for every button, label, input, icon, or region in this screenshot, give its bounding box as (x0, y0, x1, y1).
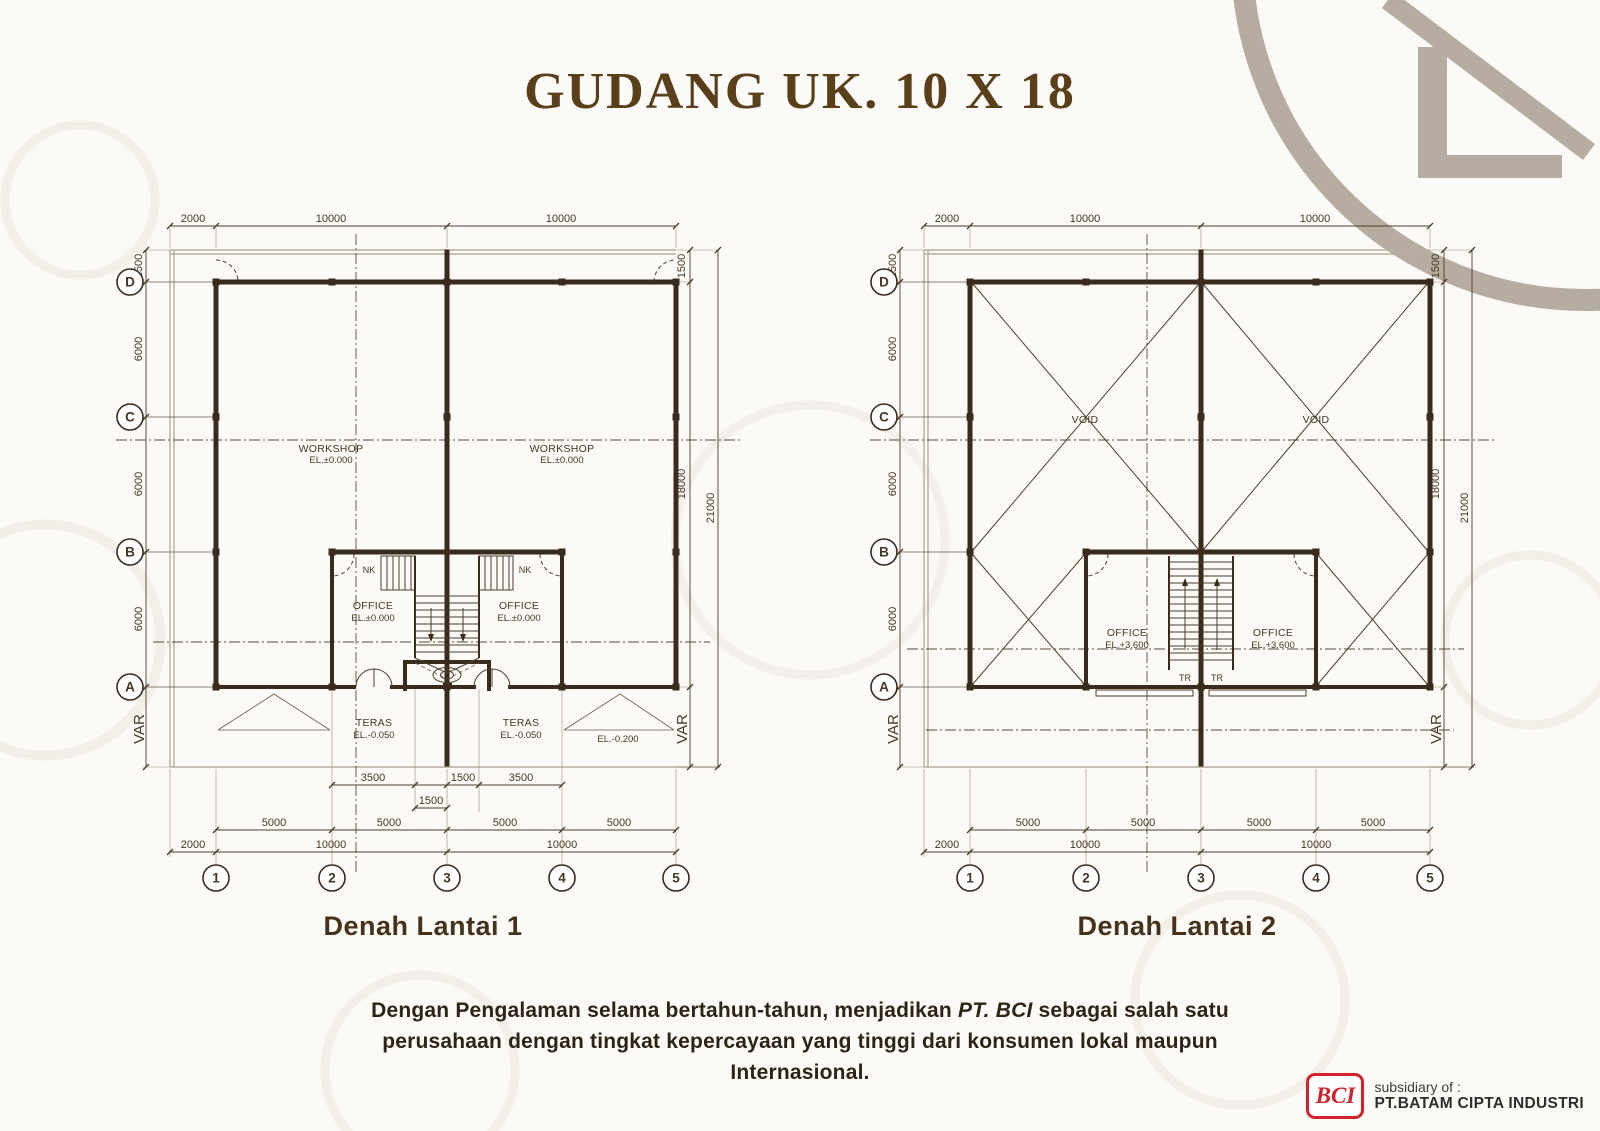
dim-label: 6000 (887, 337, 899, 361)
floor-plans-row: 2000 10000 10000 1500 6000 6000 6000 VAR… (0, 212, 1600, 942)
dim-label: 2000 (181, 213, 205, 225)
grid-bubble-label: B (879, 545, 889, 560)
room-label: EL.-0.050 (500, 730, 541, 741)
plan2-extension-lines (897, 228, 1474, 864)
plan1-grid-bubbles: D C B A 1 2 3 4 5 (117, 269, 689, 891)
grid-bubble-label: 1 (212, 871, 220, 886)
dim-label: 6000 (133, 607, 145, 631)
stair-label: NK (363, 565, 376, 575)
dim-label: 6000 (133, 337, 145, 361)
dim-label: 1500 (1430, 254, 1442, 278)
grid-bubble-label: 5 (1426, 871, 1434, 886)
room-label: EL.±0.000 (309, 455, 352, 466)
dim-label: VAR (885, 714, 902, 744)
dim-label: 5000 (262, 817, 286, 829)
room-label: OFFICE (1107, 627, 1147, 639)
dim-label: 2000 (935, 839, 959, 851)
dim-label: 5000 (1247, 817, 1271, 829)
dim-label: 6000 (133, 472, 145, 496)
room-label: EL.+3.600 (1105, 640, 1149, 651)
dim-label: 5000 (1016, 817, 1040, 829)
dim-label: 5000 (1131, 817, 1155, 829)
dim-label: VAR (674, 714, 691, 744)
stair-label: NK (519, 565, 532, 575)
footer-brand-mention: PT. BCI (958, 999, 1033, 1022)
plan2-grid-bubbles: D C B A 1 2 3 4 5 (871, 269, 1443, 891)
grid-bubble-label: 2 (328, 871, 336, 886)
plan1-dimension-labels: 2000 10000 10000 1500 6000 6000 6000 VAR… (131, 213, 717, 851)
dim-label: 10000 (1070, 213, 1101, 225)
room-label: WORKSHOP (299, 443, 364, 455)
bci-logo: BCI (1306, 1073, 1364, 1119)
plan1-grid-leaders (143, 282, 214, 687)
plan2-grid-leaders (897, 282, 968, 687)
grid-bubble-label: 3 (1197, 871, 1205, 886)
room-label: EL.+3.600 (1251, 640, 1295, 651)
stair-label: TR (1179, 673, 1191, 683)
grid-bubble-label: D (879, 275, 889, 290)
grid-bubble-label: C (125, 410, 135, 425)
dim-label: 10000 (547, 839, 578, 851)
dim-label: 6000 (887, 472, 899, 496)
company-name: PT.BATAM CIPTA INDUSTRI (1374, 1095, 1584, 1113)
room-label: EL.±0.000 (540, 455, 583, 466)
page-title: GUDANG UK. 10 X 18 (0, 62, 1600, 121)
dim-label: 10000 (316, 213, 347, 225)
dim-label: VAR (1428, 714, 1445, 744)
grid-bubble-label: 2 (1082, 871, 1090, 886)
plan2-drawing: 2000 10000 10000 1500 6000 6000 6000 VAR… (852, 212, 1502, 902)
plan1-dimension-lines (143, 223, 721, 855)
dim-label: 21000 (1459, 493, 1471, 524)
subsidiary-label: subsidiary of : (1374, 1079, 1584, 1095)
floor-plan-2: 2000 10000 10000 1500 6000 6000 6000 VAR… (852, 212, 1502, 942)
grid-bubble-label: 5 (672, 871, 680, 886)
dim-label: 10000 (1070, 839, 1101, 851)
dim-label: 1500 (419, 795, 443, 807)
grid-bubble-label: B (125, 545, 135, 560)
room-label: OFFICE (499, 600, 539, 612)
footer-text-segment: Dengan Pengalaman selama bertahun-tahun,… (371, 999, 958, 1022)
grid-bubble-label: 4 (558, 871, 566, 886)
dim-label: VAR (131, 714, 148, 744)
grid-bubble-label: C (879, 410, 889, 425)
plan2-dimension-lines (897, 223, 1475, 855)
dim-label: 5000 (493, 817, 517, 829)
dim-label: 6000 (887, 607, 899, 631)
plan1-room-labels: WORKSHOP EL.±0.000 WORKSHOP EL.±0.000 OF… (299, 443, 639, 745)
room-label: OFFICE (1253, 627, 1293, 639)
brand-text: subsidiary of : PT.BATAM CIPTA INDUSTRI (1374, 1079, 1584, 1113)
grid-bubble-label: A (125, 680, 135, 695)
grid-bubble-label: A (879, 680, 889, 695)
dim-label: 21000 (705, 493, 717, 524)
plan1-drawing: 2000 10000 10000 1500 6000 6000 6000 VAR… (98, 212, 748, 902)
room-label: TERAS (503, 717, 540, 729)
room-label: EL.-0.050 (353, 730, 394, 741)
plan2-caption: Denah Lantai 2 (852, 911, 1502, 942)
room-label: EL.±0.000 (351, 613, 394, 624)
dim-label: 10000 (1300, 213, 1331, 225)
grid-bubble-label: 1 (966, 871, 974, 886)
footer-description: Dengan Pengalaman selama bertahun-tahun,… (345, 995, 1255, 1088)
room-label: WORKSHOP (530, 443, 595, 455)
room-label: EL.±0.000 (497, 613, 540, 624)
dim-label: 5000 (1361, 817, 1385, 829)
floor-plan-1: 2000 10000 10000 1500 6000 6000 6000 VAR… (98, 212, 748, 942)
room-label: OFFICE (353, 600, 393, 612)
dim-label: 5000 (377, 817, 401, 829)
dim-label: 1500 (676, 254, 688, 278)
room-label: VOID (1303, 414, 1330, 426)
dim-label: 2000 (935, 213, 959, 225)
dim-label: 1500 (451, 772, 475, 784)
page: GUDANG UK. 10 X 18 (0, 0, 1600, 1131)
room-label: EL.-0.200 (597, 734, 638, 745)
dim-label: 2000 (181, 839, 205, 851)
dim-label: 5000 (607, 817, 631, 829)
dim-label: 3500 (361, 772, 385, 784)
dim-label: 10000 (546, 213, 577, 225)
plan1-caption: Denah Lantai 1 (98, 911, 748, 942)
dim-label: 10000 (316, 839, 347, 851)
stair-label: TR (1211, 673, 1223, 683)
bci-logo-text: BCI (1316, 1083, 1356, 1109)
dim-label: 3500 (509, 772, 533, 784)
room-label: VOID (1072, 414, 1099, 426)
brand-footer: BCI subsidiary of : PT.BATAM CIPTA INDUS… (1306, 1073, 1584, 1119)
grid-bubble-label: D (125, 275, 135, 290)
room-label: TERAS (356, 717, 393, 729)
plan1-extension-lines (143, 228, 720, 864)
grid-bubble-label: 4 (1312, 871, 1320, 886)
dim-label: 10000 (1301, 839, 1332, 851)
dim-label: 18000 (676, 469, 688, 500)
grid-bubble-label: 3 (443, 871, 451, 886)
dim-label: 18000 (1430, 469, 1442, 500)
